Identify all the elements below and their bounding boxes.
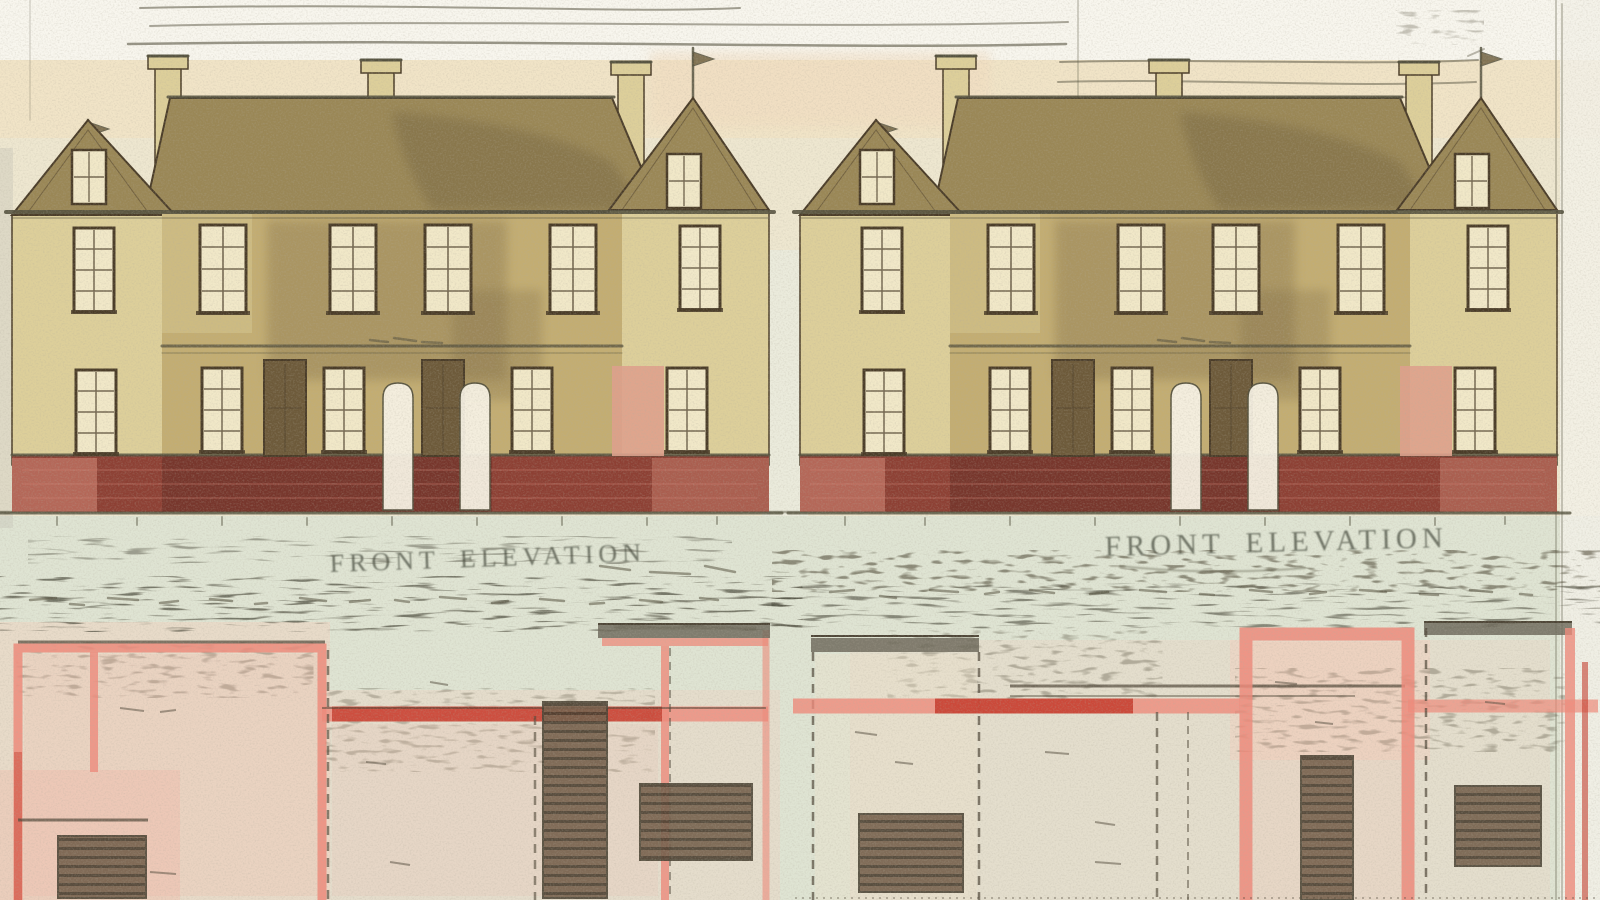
drawing-canvas: FRONT ELEVATION FRONT ELEVATION <box>0 0 1600 900</box>
scanned-architectural-drawing: FRONT ELEVATION FRONT ELEVATION <box>0 0 1600 900</box>
paper-grain-overlay <box>0 0 1600 900</box>
